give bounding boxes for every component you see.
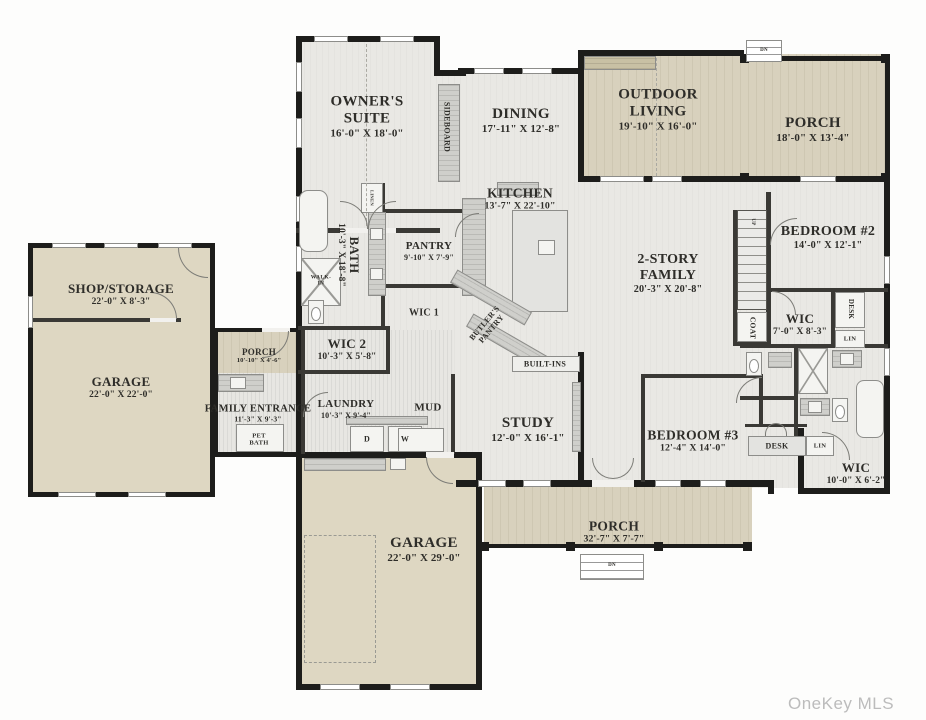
- wall-segment: [451, 374, 455, 454]
- workbench: [304, 458, 386, 471]
- room-label-pet-bath: PET BATH: [242, 433, 276, 448]
- room-label-wic2: WIC 2 10'-3" X 5'-8": [292, 337, 402, 363]
- window: [884, 256, 890, 284]
- porch-post: [740, 173, 749, 182]
- room-dims: 17'-11" X 12'-8": [456, 123, 586, 135]
- window: [522, 68, 552, 74]
- room-dims: 10'-10" X 4'-6": [214, 357, 304, 364]
- room-name: WIC 1: [409, 307, 439, 318]
- toilet: [832, 398, 848, 422]
- utility-box: [390, 458, 406, 470]
- wall-segment: [766, 288, 888, 292]
- bathtub: [299, 190, 328, 252]
- label-lin-bedroom3: LIN: [814, 442, 826, 449]
- window: [380, 36, 414, 42]
- room-dims: 11'-3" X 9'-3": [173, 416, 343, 425]
- sink: [230, 377, 246, 389]
- room-name: GARAGE: [390, 535, 458, 551]
- window: [296, 118, 302, 148]
- room-name: PANTRY: [406, 240, 452, 252]
- label-coat: COAT: [748, 317, 757, 339]
- wall-segment: [28, 243, 33, 497]
- room-dims: 9'-10" X 7'-9": [384, 253, 474, 262]
- label-up: UP: [749, 218, 755, 225]
- room-dims: 13'-7" X 22'-10": [450, 201, 590, 212]
- wall-segment: [641, 374, 763, 378]
- room-name: BATH: [347, 236, 362, 273]
- window: [52, 243, 86, 248]
- window: [104, 243, 138, 248]
- wall-segment: [298, 326, 388, 330]
- label-desk-bedroom3: DESK: [766, 441, 789, 450]
- room-label-family-entrance: FAMILY ENTRANCE 11'-3" X 9'-3": [173, 404, 343, 425]
- room-name: BEDROOM #2: [781, 224, 875, 239]
- toilet: [308, 300, 324, 324]
- room-label-garage-left: GARAGE 22'-0" X 22'-0": [56, 375, 186, 401]
- wall-segment: [768, 480, 774, 494]
- room-name: MUD: [414, 402, 441, 414]
- wall-segment: [28, 492, 215, 497]
- room-name: KITCHEN: [487, 186, 553, 201]
- room-name: SHOP/STORAGE: [68, 281, 174, 296]
- window: [523, 480, 551, 487]
- room-label-wic-bottom-right: WIC 10'-0" X 6'-2": [801, 461, 911, 487]
- room-label-bedroom3: BEDROOM #3 12'-4" X 14'-0": [623, 428, 763, 455]
- label-washer: W: [401, 434, 409, 443]
- label-dn-bottom: DN: [608, 563, 616, 569]
- room-name: PORCH: [589, 519, 639, 534]
- room-name: FAMILY ENTRANCE: [205, 404, 312, 415]
- wall-segment: [296, 452, 302, 690]
- wall-segment: [733, 342, 771, 346]
- vanity-counter: [768, 352, 792, 368]
- door-opening: [600, 176, 644, 182]
- window: [28, 296, 33, 328]
- room-label-study: STUDY 12'-0" X 16'-1": [468, 415, 588, 445]
- label-dryer: D: [364, 434, 370, 443]
- window: [474, 68, 504, 74]
- room-name: OUTDOOR LIVING: [618, 87, 698, 120]
- label-dn-top: DN: [760, 48, 768, 54]
- room-label-family: 2-STORY FAMILY 20'-3" X 20'-8": [620, 252, 716, 296]
- room-label-porch-left: PORCH 10'-10" X 4'-6": [214, 347, 304, 365]
- door-opening: [800, 176, 836, 182]
- room-dims: 19'-10" X 16'-0": [600, 121, 716, 133]
- room-name: WIC 2: [328, 336, 367, 351]
- porch-post: [743, 542, 752, 551]
- room-name: PORCH: [242, 347, 276, 357]
- room-dims: 22'-0" X 29'-0": [349, 552, 499, 564]
- room-label-mud: MUD: [414, 402, 441, 415]
- room-label-dining: DINING 17'-11" X 12'-8": [456, 106, 586, 136]
- toilet-bowl: [835, 405, 845, 419]
- room-dims: 18'-0" X 13'-4": [748, 132, 878, 144]
- room-name: DINING: [492, 106, 550, 122]
- door-opening: [652, 176, 682, 182]
- room-dims: 7'-0" X 8'-3": [755, 327, 845, 338]
- room-dims: 10'-3" X 18'-8": [335, 195, 346, 315]
- room-name: OWNER'S SUITE: [331, 94, 404, 127]
- wall-segment: [798, 488, 890, 494]
- wall-segment: [210, 243, 215, 497]
- room-dims: 22'-0" X 8'-3": [36, 297, 206, 308]
- room-label-built-ins: BUILT-INS: [524, 359, 566, 368]
- label-lin-bedroom2: LIN: [844, 335, 856, 342]
- floor-plan: OWNER'S SUITE 16'-0" X 18'-0" DINING 17'…: [0, 0, 926, 720]
- room-label-bedroom2: BEDROOM #2 14'-0" X 12'-1": [763, 224, 893, 252]
- room-dims: 32'-7" X 7'-7": [549, 534, 679, 545]
- room-label-outdoor-living: OUTDOOR LIVING 19'-10" X 16'-0": [600, 87, 716, 134]
- watermark: OneKey MLS: [788, 694, 894, 714]
- room-label-kitchen: KITCHEN 13'-7" X 22'-10": [450, 186, 590, 213]
- toilet: [746, 352, 762, 376]
- room-name: PORCH: [785, 115, 841, 131]
- sink: [370, 268, 383, 280]
- window: [296, 62, 302, 92]
- room-name: PET BATH: [249, 433, 268, 447]
- room-label-owners-suite: OWNER'S SUITE 16'-0" X 18'-0": [315, 94, 419, 141]
- room-dims: 14'-0" X 12'-1": [763, 240, 893, 252]
- room-name: STUDY: [502, 415, 554, 431]
- window: [128, 492, 166, 497]
- window: [700, 480, 726, 487]
- room-name: WIC: [786, 311, 814, 326]
- label-desk-bedroom2: DESK: [846, 299, 854, 319]
- room-name: GARAGE: [92, 374, 151, 389]
- sink: [840, 353, 854, 365]
- window: [58, 492, 96, 497]
- wall-segment: [476, 452, 482, 690]
- kitchen-island: [512, 210, 568, 312]
- porch-post: [881, 173, 890, 182]
- label-walk-in: WALK-IN: [308, 275, 334, 288]
- room-label-wic1: WIC 1: [409, 307, 439, 318]
- window: [655, 480, 681, 487]
- room-label-porch-bottom: PORCH 32'-7" X 7'-7": [549, 519, 679, 546]
- shower: [798, 348, 828, 394]
- door-opening: [592, 480, 634, 487]
- room-name: BUILT-INS: [524, 359, 566, 368]
- room-label-shop-storage: SHOP/STORAGE 22'-0" X 8'-3": [36, 282, 206, 308]
- sink: [370, 228, 383, 240]
- sink: [808, 401, 822, 413]
- room-name: WIC: [842, 460, 870, 475]
- room-dims: 16'-0" X 18'-0": [315, 128, 419, 140]
- label-sideboard: SIDEBOARD: [442, 102, 451, 152]
- label-linen: LINEN: [369, 190, 374, 206]
- wall-segment: [456, 480, 582, 487]
- room-label-garage-bottom: GARAGE 22'-0" X 29'-0": [349, 535, 499, 565]
- room-dims: 10'-3" X 5'-8": [292, 352, 402, 363]
- window: [390, 684, 430, 690]
- room-name: 2-STORY FAMILY: [637, 252, 698, 283]
- room-dims: 12'-0" X 16'-1": [468, 432, 588, 444]
- grill-counter: [584, 56, 656, 70]
- island-sink: [538, 240, 555, 255]
- window: [314, 36, 348, 42]
- room-label-bath: BATH 10'-3" X 18'-8": [335, 195, 361, 315]
- room-label-pantry: PANTRY 9'-10" X 7'-9": [384, 240, 474, 262]
- room-dims: 22'-0" X 22'-0": [56, 390, 186, 401]
- window: [478, 480, 506, 487]
- room-dims: 10'-0" X 6'-2": [801, 476, 911, 487]
- porch-post: [881, 54, 890, 63]
- room-name: BEDROOM #3: [647, 428, 738, 443]
- room-label-wic-bedroom2: WIC 7'-0" X 8'-3": [755, 312, 845, 338]
- window: [884, 348, 890, 376]
- window: [320, 684, 360, 690]
- porch-rail: [885, 56, 890, 182]
- bathtub: [856, 380, 884, 438]
- wall-segment: [213, 452, 305, 457]
- toilet-bowl: [749, 359, 759, 373]
- room-label-porch-top: PORCH 18'-0" X 13'-4": [748, 115, 878, 145]
- toilet-bowl: [311, 307, 321, 321]
- room-dims: 20'-3" X 20'-8": [620, 284, 716, 296]
- wall-segment: [298, 370, 390, 374]
- room-dims: 12'-4" X 14'-0": [623, 443, 763, 454]
